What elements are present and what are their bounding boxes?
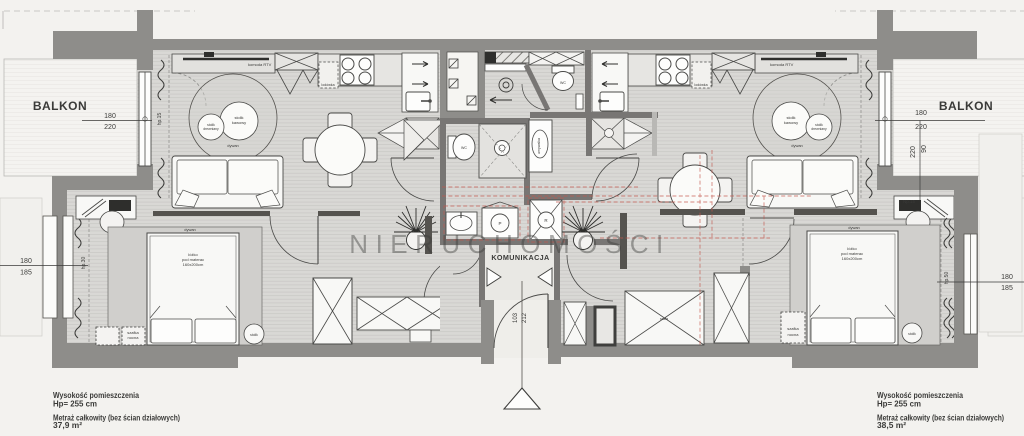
svg-text:drewniany: drewniany (811, 127, 827, 131)
svg-text:lodówka: lodówka (694, 83, 707, 87)
svg-text:Hp= 255 cm: Hp= 255 cm (877, 400, 921, 409)
svg-text:kawowy: kawowy (232, 120, 246, 125)
svg-text:szafa: szafa (660, 317, 668, 321)
svg-text:103: 103 (513, 312, 519, 323)
svg-text:185: 185 (1001, 285, 1013, 292)
svg-text:WC: WC (560, 81, 566, 85)
svg-text:drewniany: drewniany (203, 127, 219, 131)
svg-text:90: 90 (921, 145, 928, 153)
svg-text:220: 220 (910, 146, 917, 158)
svg-text:hp.30: hp.30 (81, 257, 87, 270)
svg-text:hp.50: hp.50 (944, 272, 950, 285)
svg-text:180: 180 (1001, 274, 1013, 281)
svg-text:Hp= 255 cm: Hp= 255 cm (53, 400, 97, 409)
svg-text:220: 220 (915, 124, 927, 131)
svg-text:stolik: stolik (908, 332, 916, 336)
svg-text:Np.15: Np.15 (903, 199, 916, 204)
svg-text:220: 220 (104, 124, 116, 131)
svg-text:37,9 m²: 37,9 m² (53, 421, 82, 430)
svg-text:dywan: dywan (227, 143, 239, 148)
svg-text:dywan: dywan (184, 227, 196, 232)
svg-text:180: 180 (915, 110, 927, 117)
svg-text:180: 180 (20, 258, 32, 265)
svg-text:nocna: nocna (788, 332, 800, 337)
svg-text:P: P (498, 221, 501, 226)
svg-text:umywalka: umywalka (537, 138, 541, 154)
svg-text:160x200cm: 160x200cm (842, 256, 863, 261)
svg-text:WC: WC (461, 146, 467, 150)
svg-text:BALKON: BALKON (33, 99, 87, 113)
svg-text:212: 212 (522, 312, 528, 323)
svg-text:komoda RTV: komoda RTV (770, 62, 794, 67)
svg-text:dywan: dywan (791, 143, 803, 148)
svg-text:stolik: stolik (250, 333, 258, 337)
svg-text:180: 180 (104, 113, 116, 120)
svg-text:160x200cm: 160x200cm (183, 262, 204, 267)
svg-text:komoda RTV: komoda RTV (248, 62, 272, 67)
svg-text:kawowy: kawowy (784, 120, 798, 125)
svg-text:szafka: szafka (787, 326, 799, 331)
svg-text:185: 185 (20, 270, 32, 277)
svg-text:BALKON: BALKON (939, 99, 993, 113)
svg-text:38,5 m²: 38,5 m² (877, 421, 906, 430)
svg-text:dywan: dywan (848, 225, 860, 230)
svg-text:lodówka: lodówka (321, 83, 334, 87)
svg-text:hp.15: hp.15 (157, 113, 163, 126)
svg-text:nocna: nocna (128, 335, 140, 340)
svg-text:NIERUCHOMOŚCI: NIERUCHOMOŚCI (349, 229, 670, 259)
